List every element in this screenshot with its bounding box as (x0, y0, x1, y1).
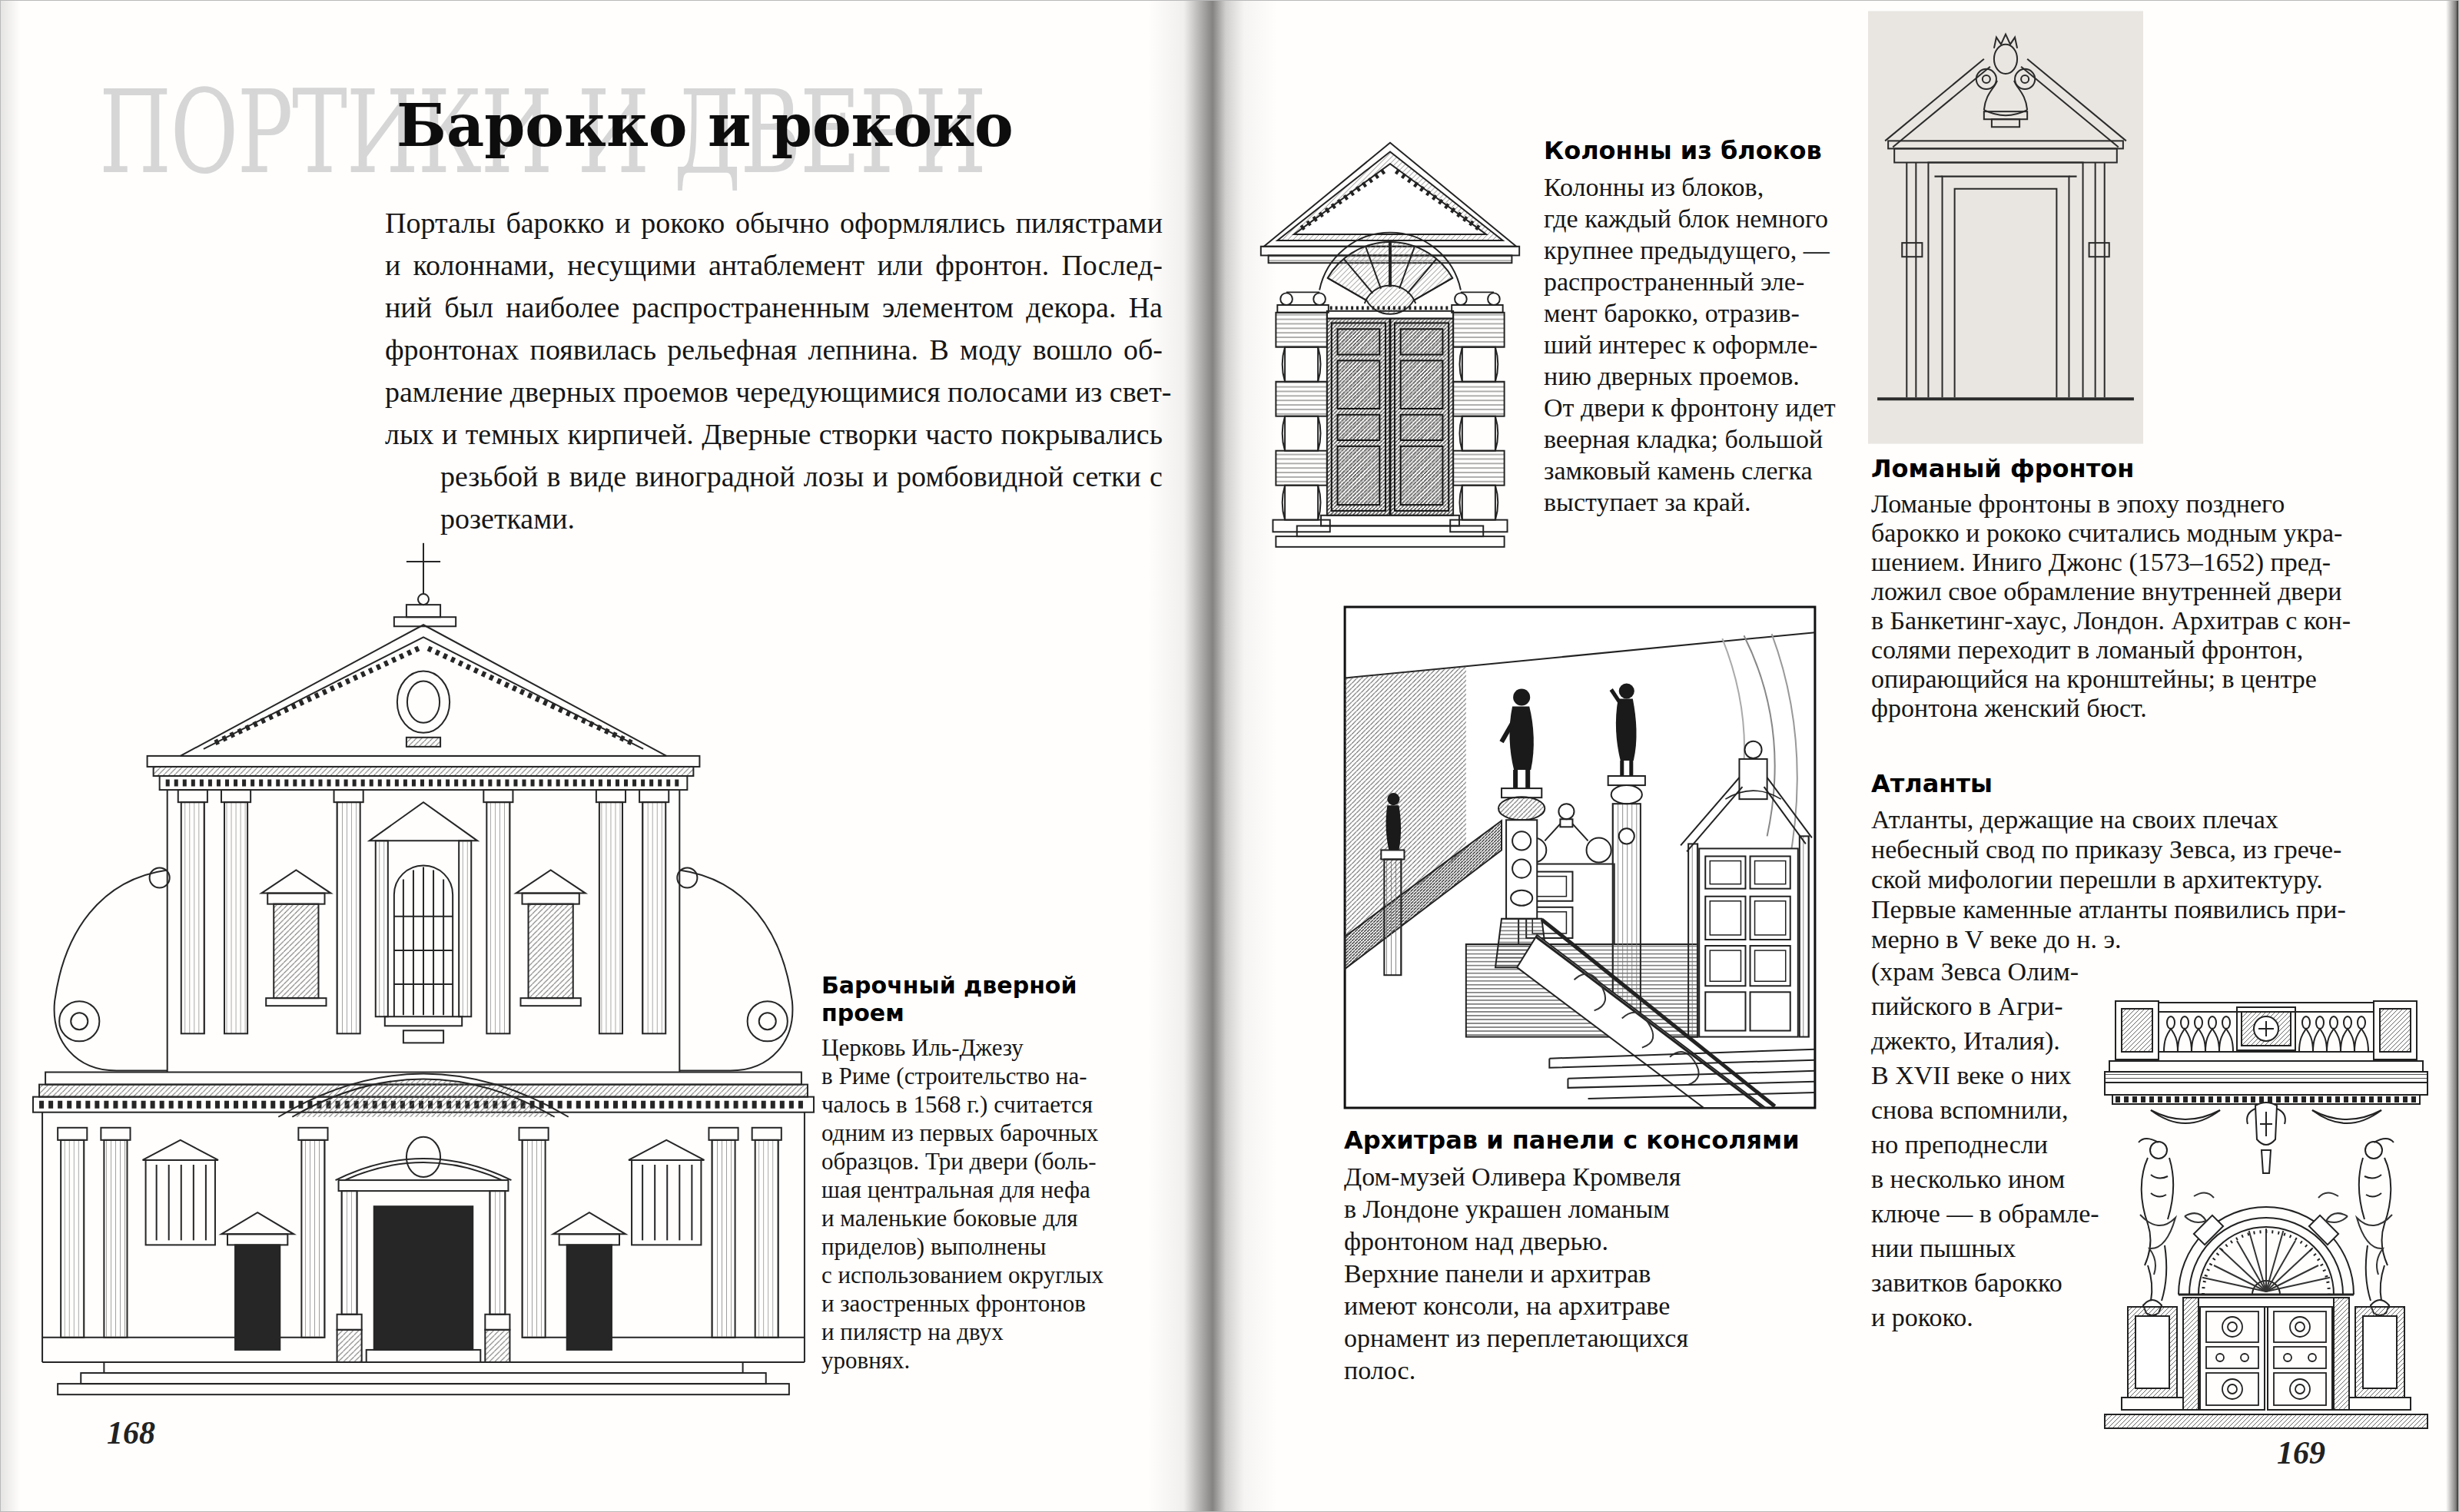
text-line: чалось в 1568 г.) считается (821, 1090, 1152, 1119)
text-line: небесный свод по приказу Зевса, из грече… (1871, 834, 2409, 864)
section-atlantes: Атланты Атланты, держащие на своих плеча… (1871, 769, 2409, 1335)
text-line: фронтона женский бюст. (1871, 694, 2409, 723)
text-line: джекто, Италия). (1871, 1023, 2102, 1058)
text-line: выступает за край. (1544, 486, 1851, 518)
text-line: и маленькие боковые для (821, 1204, 1152, 1232)
text-line: нию дверных проемов. (1544, 360, 1851, 392)
text-line: шая центральная для нефа (821, 1175, 1152, 1204)
text-line: полос. (1344, 1354, 1843, 1387)
text-line: завитков барокко (1871, 1265, 2102, 1300)
text-line: в Лондоне украшен ломаным (1344, 1193, 1843, 1225)
text-line: фронтонах появилась рельефная лепнина. В… (385, 329, 1163, 371)
text-line: но преподнесли (1871, 1127, 2102, 1162)
text-line: веерная кладка; большой (1544, 423, 1851, 455)
text-line: Ломаные фронтоны в эпоху позднего (1871, 489, 2409, 519)
page-edge-left (1, 1, 21, 1512)
page-number-left: 168 (107, 1414, 155, 1451)
section-text: Дом-музей Оливера Кромвеляв Лондоне укра… (1344, 1161, 1843, 1387)
text-line: фронтоном над дверью. (1344, 1225, 1843, 1258)
text-line: пийского в Агри- (1871, 989, 2102, 1023)
intro-paragraph: Порталы барокко и рококо обычно оформлял… (385, 202, 1163, 540)
church-facade-illustration (30, 529, 817, 1411)
text-line: в Банкетинг-хаус, Лондон. Архитрав с кон… (1871, 606, 2409, 635)
text-line: распространенный эле- (1544, 266, 1851, 297)
block-columns-door-illustration (1255, 104, 1525, 574)
text-line: с использованием округлых (821, 1261, 1152, 1289)
section-architrave: Архитрав и панели с консолями Дом-музей … (1344, 1126, 1843, 1387)
text-line: ний был наиболее распространенным элемен… (385, 287, 1163, 329)
church-figure-caption: Барочный дверной проем Церковь Иль-Джезу… (821, 972, 1152, 1374)
text-line: ший интерес к оформле- (1544, 329, 1851, 360)
text-line: Колонны из блоков, (1544, 171, 1851, 203)
text-line: барокко и рококо считались модным укра- (1871, 519, 2409, 548)
text-line: где каждый блок немного (1544, 203, 1851, 234)
section-block-columns: Колонны из блоков Колонны из блоков,где … (1544, 136, 1851, 518)
text-line: и рококо. (1871, 1300, 2102, 1335)
text-line: Церковь Иль-Джезу (821, 1033, 1152, 1062)
text-line: Порталы барокко и рококо обычно оформлял… (385, 202, 1163, 244)
caption-heading: Барочный дверной проем (821, 972, 1152, 1027)
text-line: В XVII веке о них (1871, 1058, 2102, 1093)
text-line: в Риме (строительство на- (821, 1062, 1152, 1090)
section-heading: Архитрав и панели с консолями (1344, 1126, 1843, 1155)
text-line: От двери к фронтону идет (1544, 392, 1851, 423)
staircase-illustration (1342, 605, 1817, 1110)
text-line: и пилястр на двух (821, 1318, 1152, 1346)
section-broken-pediment: Ломаный фронтон Ломаные фронтоны в эпоху… (1871, 454, 2409, 723)
text-line: приделов) выполнены (821, 1232, 1152, 1261)
text-line: ключе — в обрамле- (1871, 1196, 2102, 1231)
text-line: Первые каменные атланты появились при- (1871, 894, 2409, 924)
text-line: солями переходит в ломаный фронтон, (1871, 635, 2409, 665)
book-spread: ПОРТИКИ И ДВЕРИ Барокко и рококо Порталы… (0, 0, 2459, 1512)
text-line: замковый камень слегка (1544, 455, 1851, 486)
section-heading: Атланты (1871, 769, 2409, 798)
text-line: имеют консоли, на архитраве (1344, 1290, 1843, 1322)
text-line: нии пышных (1871, 1231, 2102, 1265)
page-number-right: 169 (2277, 1434, 2325, 1471)
section-heading: Ломаный фронтон (1871, 454, 2409, 483)
text-line: Верхние панели и архитрав (1344, 1258, 1843, 1290)
caption-text: Церковь Иль-Джезув Риме (строительство н… (821, 1033, 1152, 1374)
text-line: одним из первых барочных (821, 1119, 1152, 1147)
text-line: и заостренных фронтонов (821, 1289, 1152, 1318)
text-line: ской мифологии перешли в архитектуру. (1871, 864, 2409, 894)
text-line: лых и темных кирпичей. Дверные створки ч… (385, 413, 1163, 456)
text-line: рамление дверных проемов чередующимися п… (385, 371, 1163, 413)
text-line: резьбой в виде виноградной лозы и ромбов… (385, 456, 1163, 498)
section-text: Колонны из блоков,где каждый блок немног… (1544, 171, 1851, 518)
text-line: и колоннами, несущими антаблемент или фр… (385, 244, 1163, 287)
broken-pediment-illustration (1868, 10, 2143, 445)
page-title: Барокко и рококо (397, 91, 1014, 160)
text-line: опирающийся на кронштейны; в центре (1871, 665, 2409, 694)
text-line: крупнее предыдущего, — (1544, 234, 1851, 266)
text-line: мент барокко, отразив- (1544, 297, 1851, 329)
section-text-narrow: (храм Зевса Олим-пийского в Агри-джекто,… (1871, 954, 2102, 1335)
text-line: снова вспомнили, (1871, 1093, 2102, 1127)
page-edge-right (2446, 1, 2458, 1512)
text-line: (храм Зевса Олим- (1871, 954, 2102, 989)
text-line: ложил свое обрамление внутренней двери (1871, 577, 2409, 606)
text-line: уровнях. (821, 1346, 1152, 1374)
text-line: образцов. Три двери (боль- (821, 1147, 1152, 1175)
text-line: орнамент из переплетающихся (1344, 1322, 1843, 1354)
section-text-wide: Атланты, держащие на своих плечахнебесны… (1871, 804, 2409, 954)
text-line: мерно в V веке до н. э. (1871, 924, 2409, 954)
section-heading: Колонны из блоков (1544, 136, 1851, 165)
text-line: шением. Иниго Джонс (1573–1652) пред- (1871, 548, 2409, 577)
text-line: Дом-музей Оливера Кромвеля (1344, 1161, 1843, 1193)
section-text: Ломаные фронтоны в эпоху позднегобарокко… (1871, 489, 2409, 723)
text-line: Атланты, держащие на своих плечах (1871, 804, 2409, 834)
text-line: в несколько ином (1871, 1162, 2102, 1196)
